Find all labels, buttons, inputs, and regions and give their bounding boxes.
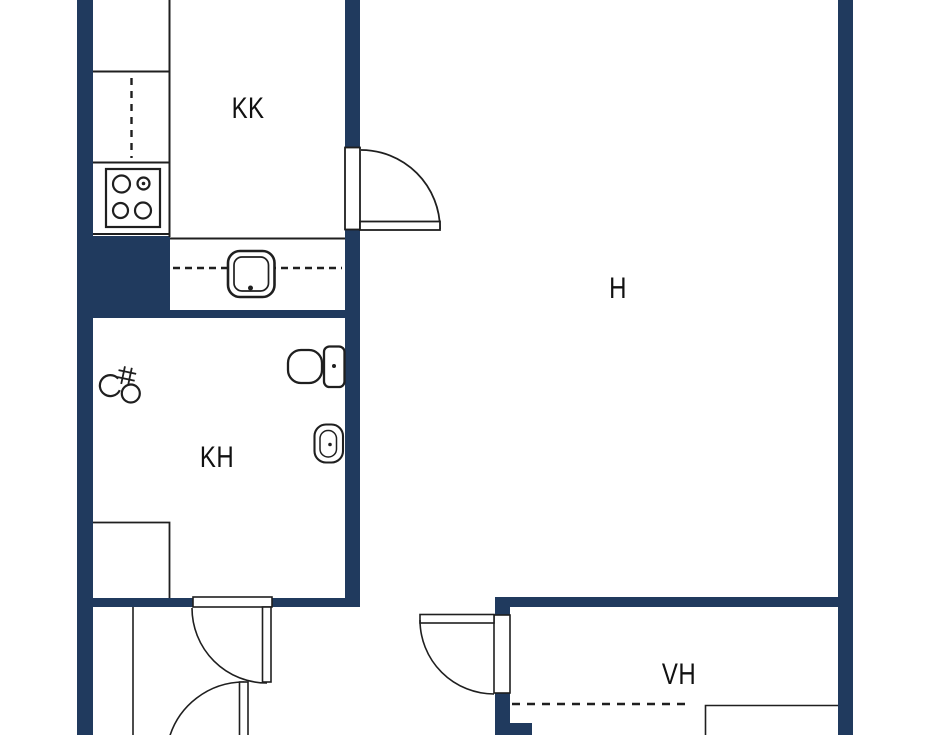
room-label-kk: KK (232, 94, 265, 124)
wall-vh-top (495, 597, 853, 607)
wall-kh-bottom-left (93, 598, 193, 607)
wall-kh-bottom-right (272, 598, 360, 607)
washbasin-icon (315, 425, 344, 463)
kk-door-leaf (360, 222, 440, 231)
shower-head-circle (122, 385, 140, 403)
kk-door-arc (361, 150, 440, 229)
kh-door-arc (192, 608, 267, 683)
toilet-bowl (288, 350, 322, 383)
vh-door (420, 615, 510, 695)
wall-kk-kh-right (345, 229, 360, 607)
wall-right (838, 0, 853, 735)
stove-icon (106, 169, 160, 227)
kh-closet-outline (93, 523, 170, 599)
kk-door-jamb (345, 148, 360, 230)
room-label-h: H (609, 274, 627, 304)
toilet-icon (288, 347, 345, 388)
entrance-door (169, 682, 248, 735)
kh-door-leaf (263, 607, 272, 682)
wall-kk-right-upper (345, 0, 360, 148)
kh-door-jamb (193, 597, 272, 607)
shower-hash (116, 365, 137, 386)
wall-left (77, 0, 93, 735)
wall-vh-left-upper (495, 597, 510, 617)
shower-hose-arc (100, 375, 120, 396)
shower-icon (100, 365, 140, 402)
vh-wardrobe-outline (706, 706, 839, 735)
entrance-door-arc (169, 682, 244, 735)
kh-door (192, 597, 272, 683)
entrance-door-leaf (240, 682, 249, 735)
vh-door-arc (420, 620, 494, 694)
kk-door (345, 148, 440, 231)
room-label-vh: VH (662, 660, 696, 690)
vh-door-jamb (494, 615, 510, 693)
vh-door-leaf (420, 615, 494, 624)
floorplan-page: KK H KH VH (0, 0, 935, 735)
floorplan-drawing (0, 0, 935, 735)
room-label-kh: KH (200, 443, 234, 473)
kitchen-sink-icon (228, 251, 275, 297)
wall-vh-foot (510, 723, 532, 735)
wall-kitchen-block (77, 236, 170, 318)
wall-kh-top (77, 310, 360, 318)
wall-vh-left-lower (495, 692, 510, 735)
